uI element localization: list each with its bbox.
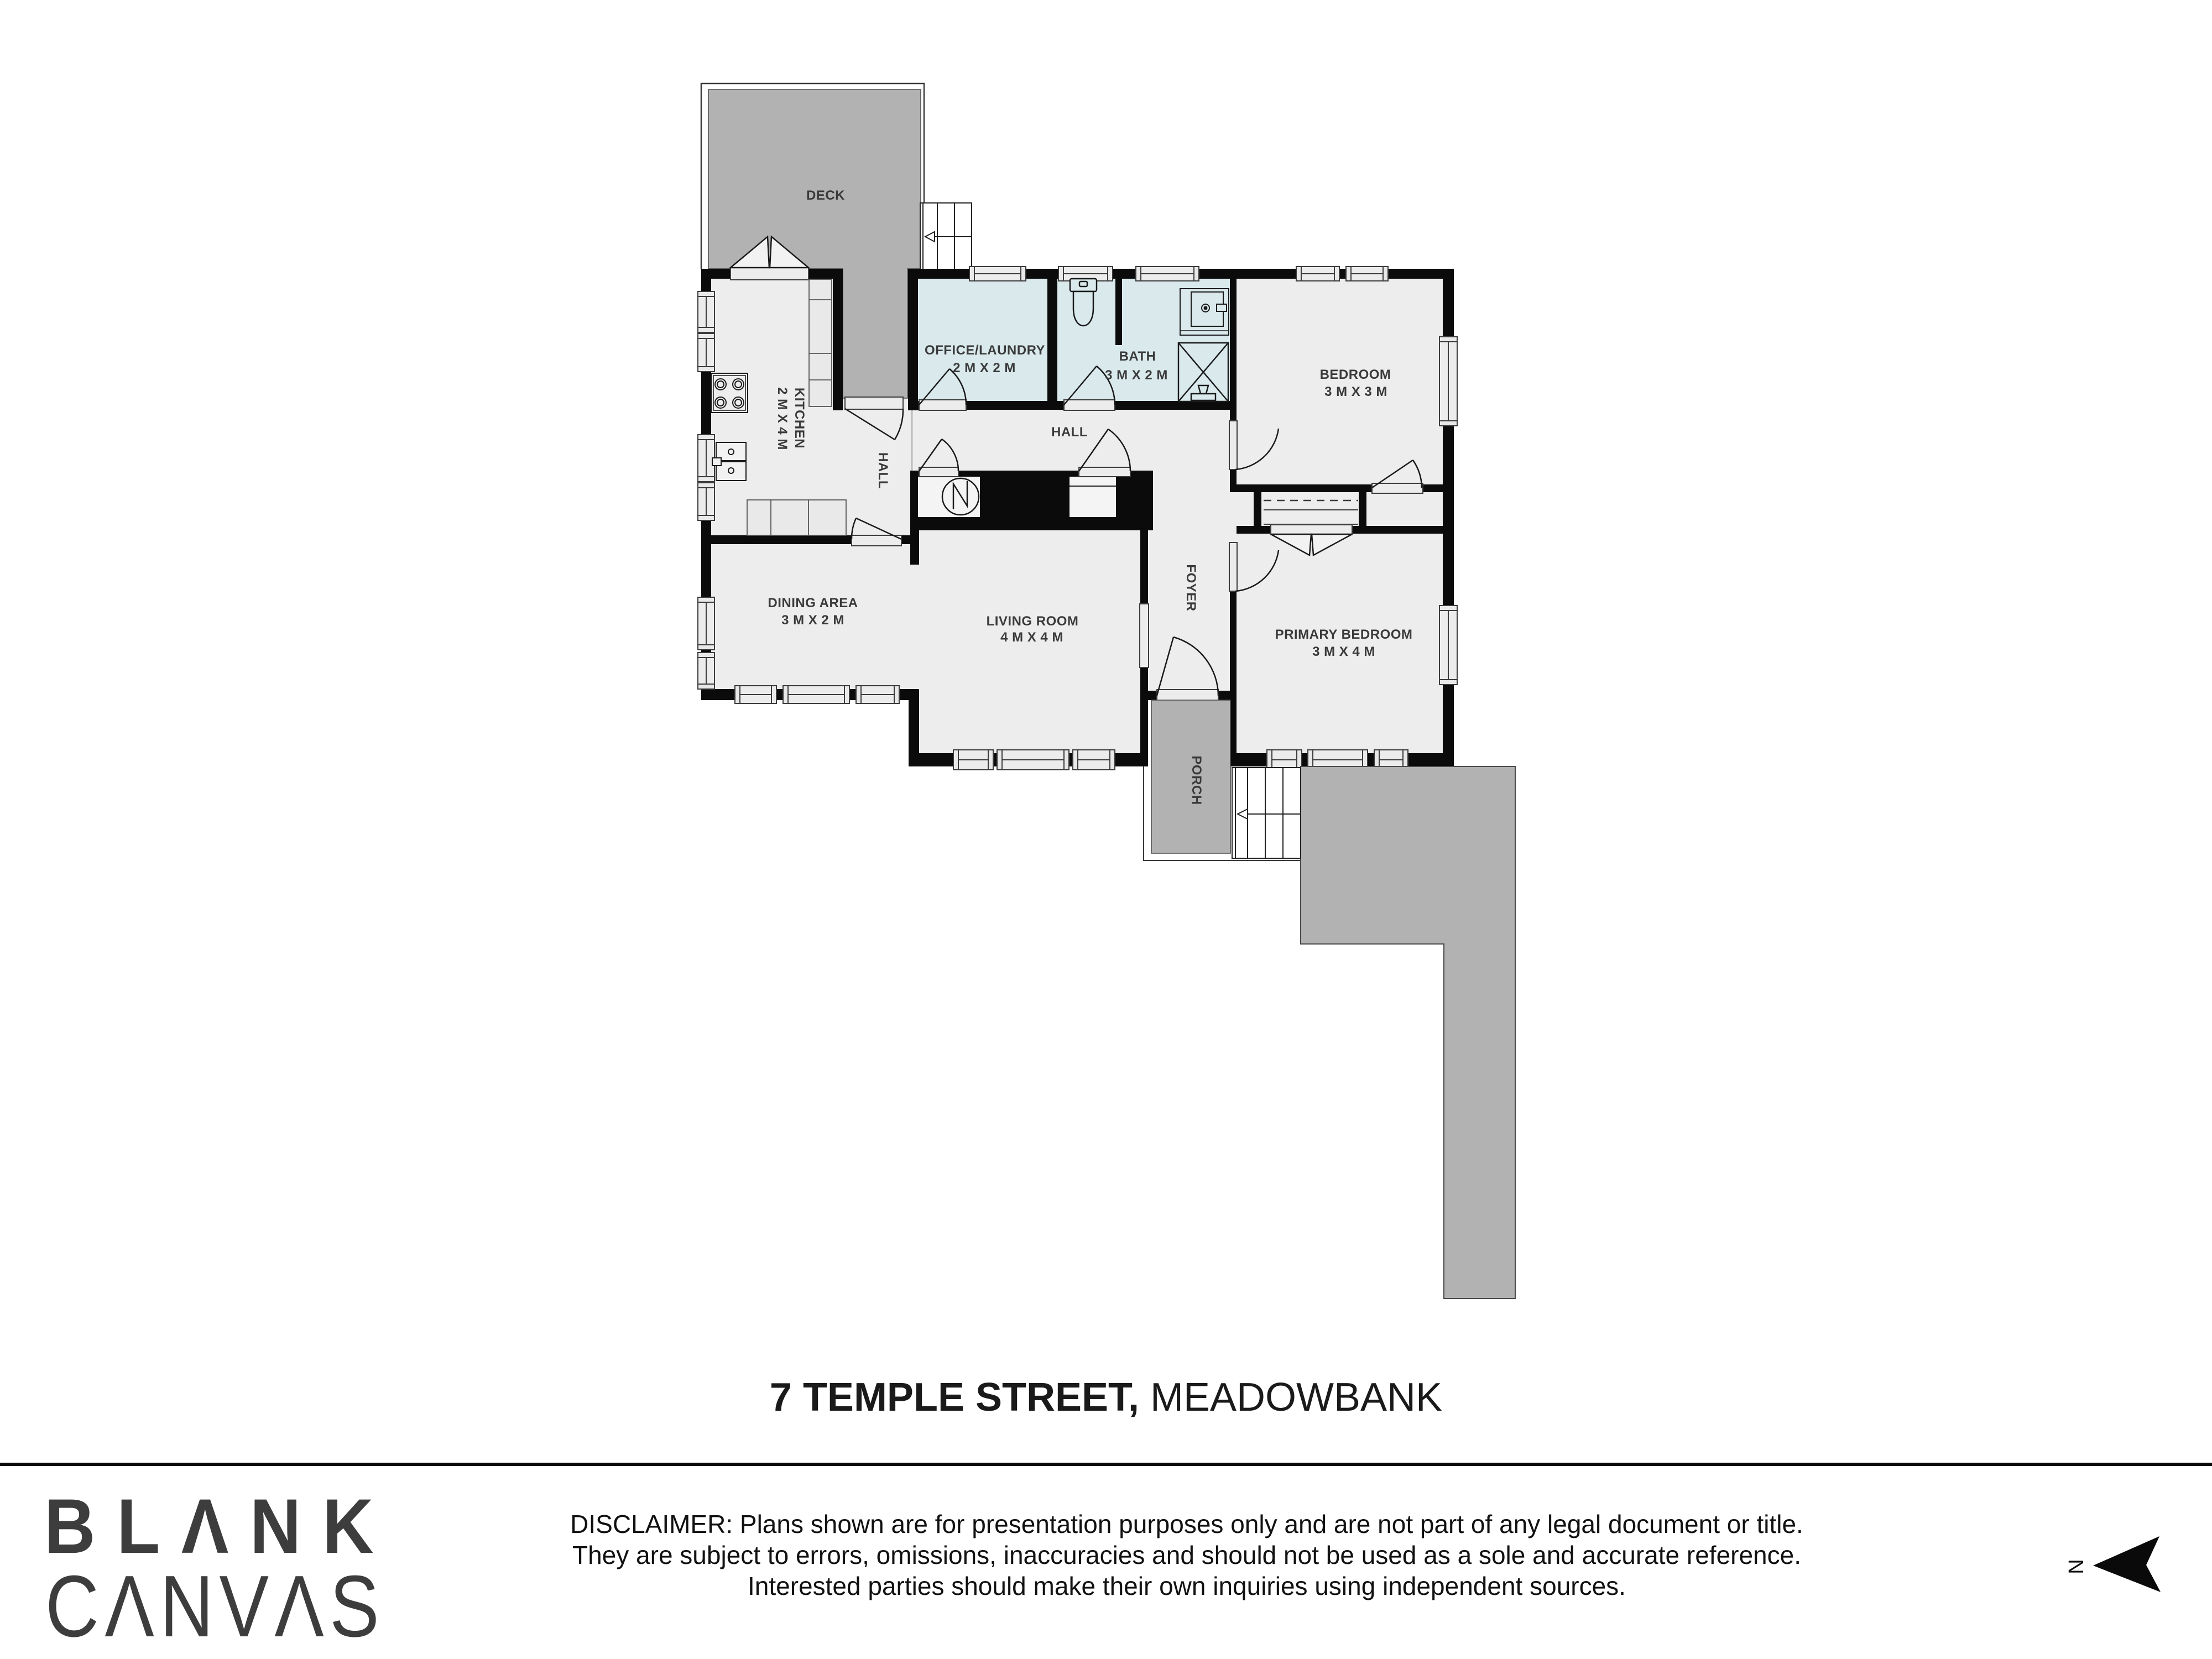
svg-text:BEDROOM: BEDROOM [1320,367,1391,382]
svg-text:BLΛNK: BLΛNK [44,1483,395,1569]
svg-text:HALL: HALL [1051,425,1088,440]
svg-text:They are subject to errors, om: They are subject to errors, omissions, i… [572,1541,1801,1569]
svg-text:PORCH: PORCH [1189,755,1204,805]
svg-text:DINING AREA: DINING AREA [768,596,858,611]
svg-text:3 M X 2 M: 3 M X 2 M [1105,368,1168,383]
svg-text:DECK: DECK [806,188,845,203]
svg-text:FOYER: FOYER [1183,564,1198,611]
svg-text:PRIMARY BEDROOM: PRIMARY BEDROOM [1275,627,1413,642]
svg-text:BATH: BATH [1119,349,1156,364]
svg-text:7 TEMPLE STREET, MEADOWBANK: 7 TEMPLE STREET, MEADOWBANK [770,1375,1442,1420]
svg-text:2 M X 4 M: 2 M X 4 M [775,387,790,450]
svg-text:LIVING ROOM: LIVING ROOM [987,614,1079,629]
svg-text:3 M X 4 M: 3 M X 4 M [1312,644,1375,659]
svg-text:Interested parties should make: Interested parties should make their own… [748,1572,1626,1600]
svg-text:CΛNVΛS: CΛNVΛS [45,1558,385,1655]
svg-text:N: N [2065,1559,2088,1574]
svg-text:KITCHEN: KITCHEN [792,388,807,448]
svg-text:HALL: HALL [875,452,890,489]
svg-text:OFFICE/LAUNDRY: OFFICE/LAUNDRY [925,343,1045,358]
svg-text:3 M X 2 M: 3 M X 2 M [781,613,844,628]
svg-text:4 M X 4 M: 4 M X 4 M [1000,630,1063,645]
svg-text:DISCLAIMER: Plans shown are fo: DISCLAIMER: Plans shown are for presenta… [570,1510,1803,1538]
svg-text:3 M X 3 M: 3 M X 3 M [1324,384,1387,399]
svg-text:2 M X 2 M: 2 M X 2 M [953,361,1016,375]
